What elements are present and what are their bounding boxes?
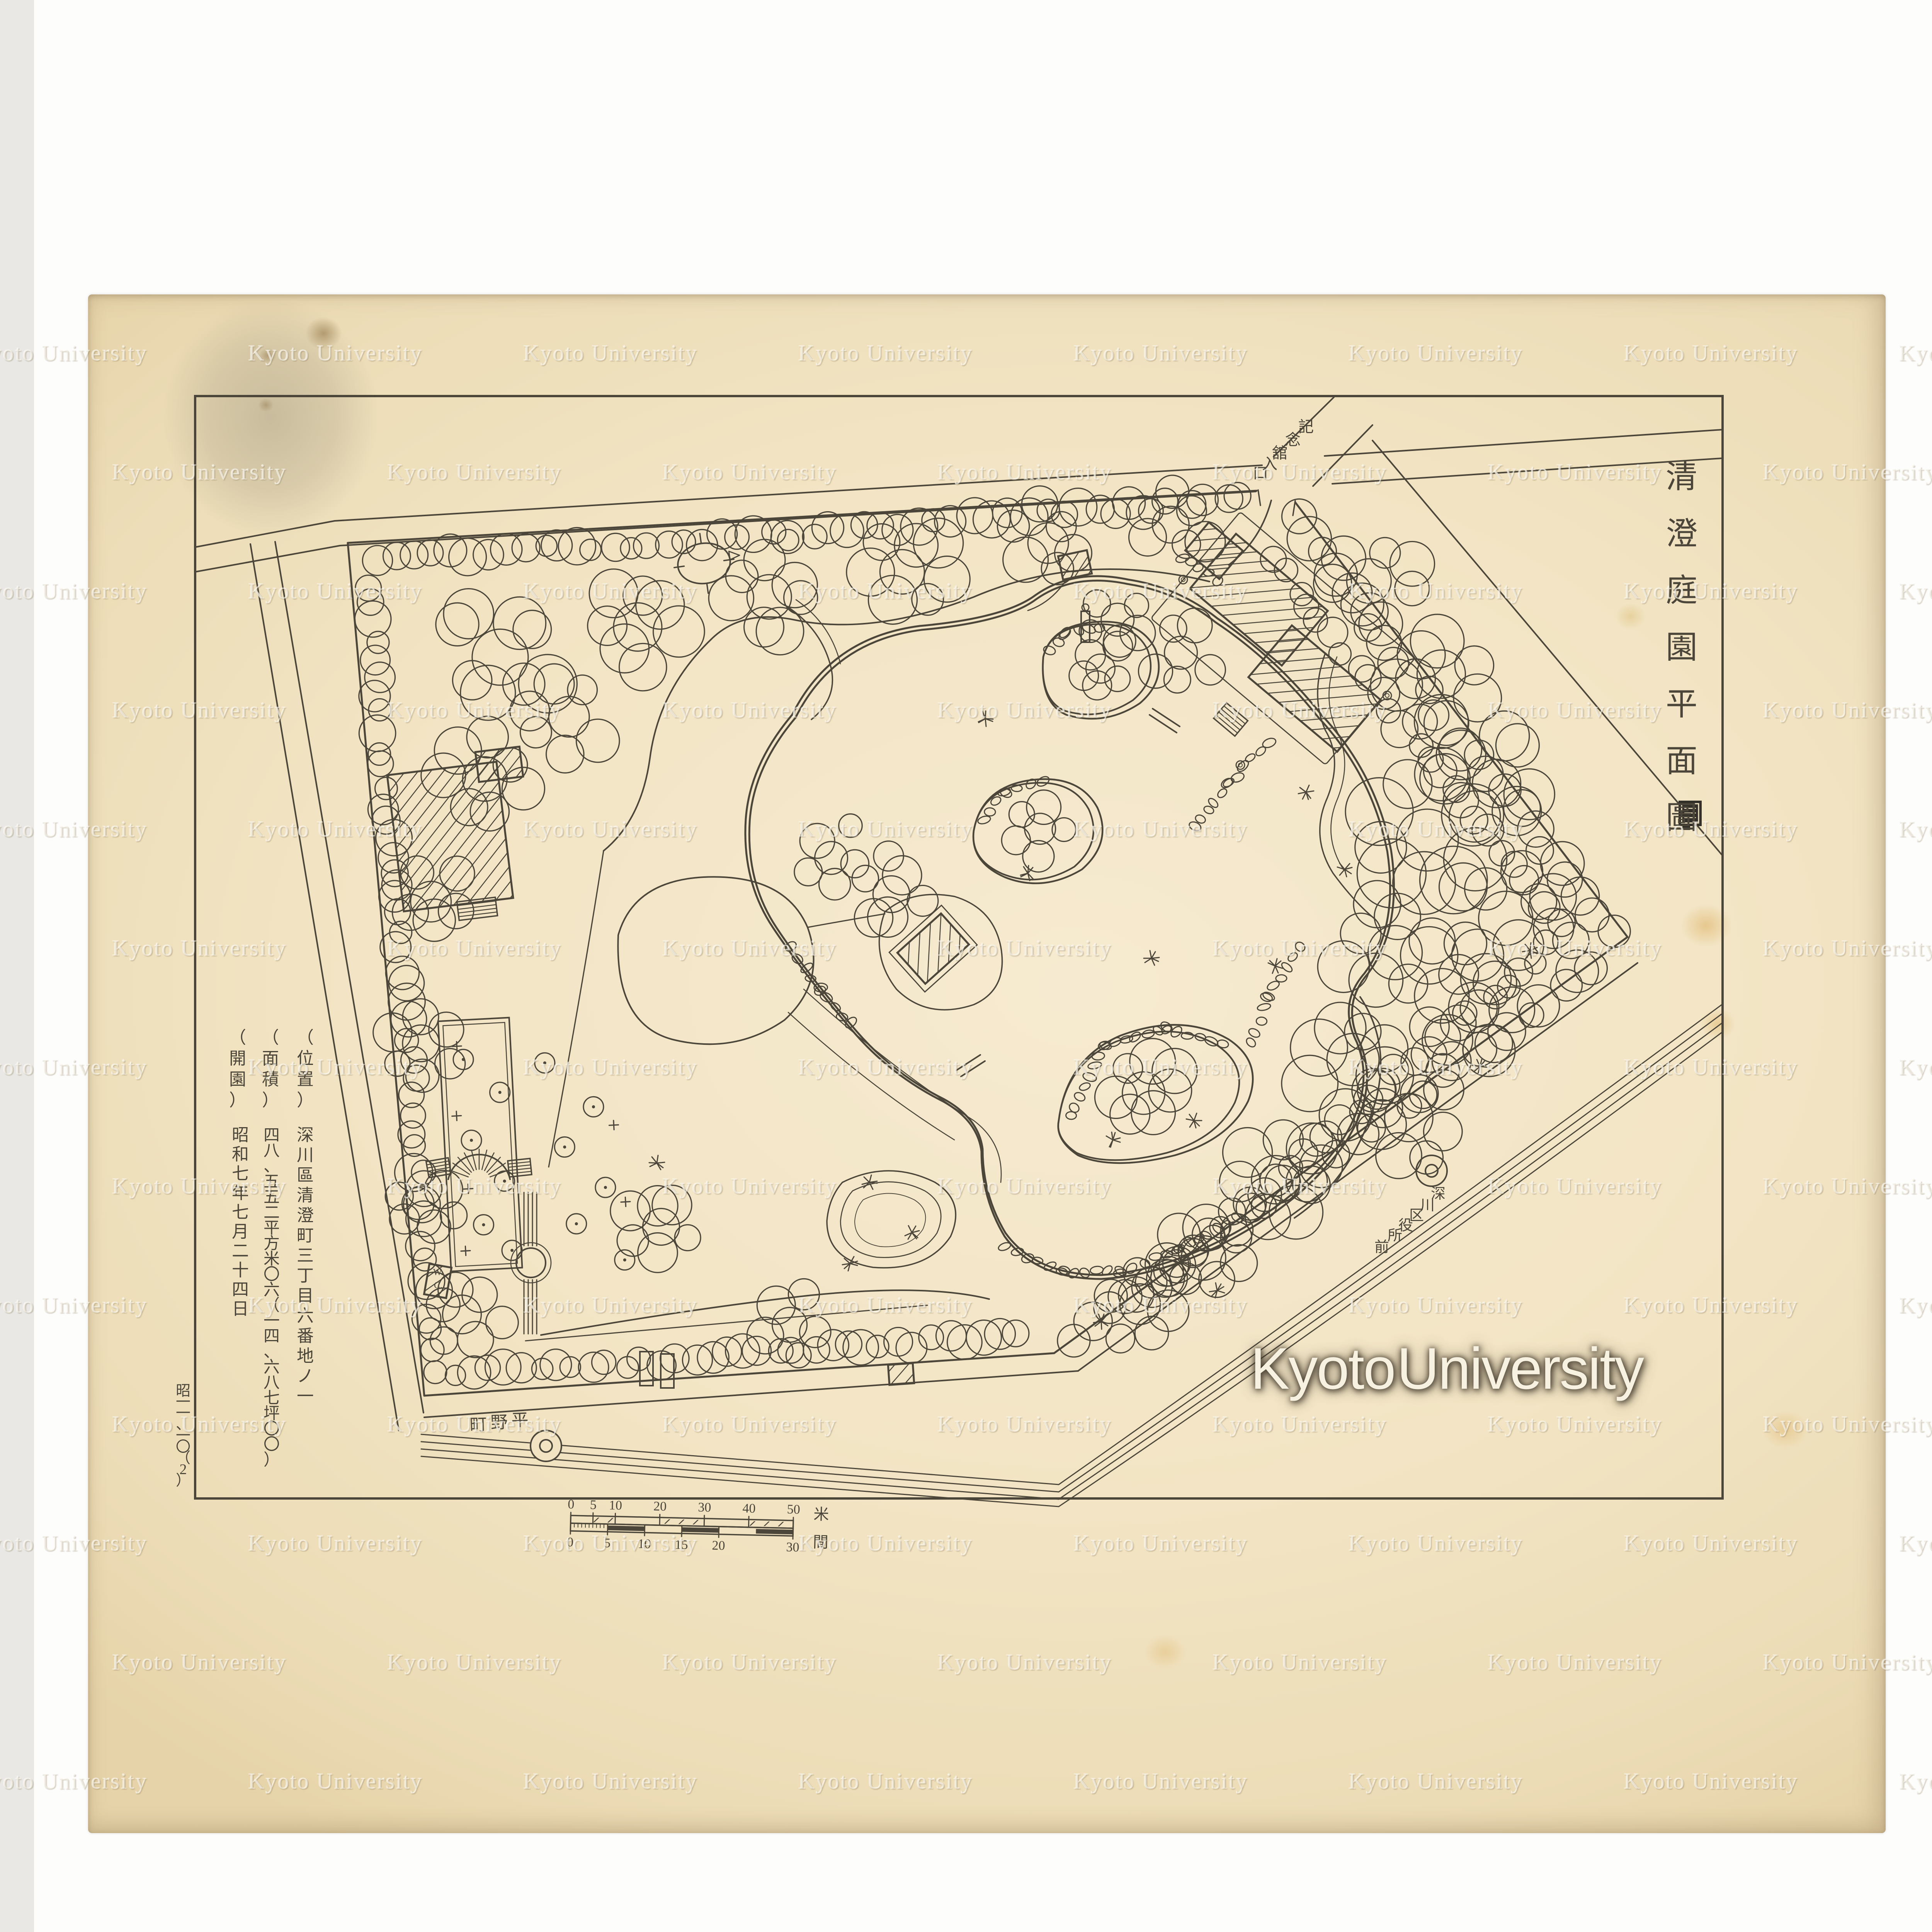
watermark-tile: Kyoto University: [248, 340, 423, 366]
watermark-tile: Kyoto University: [248, 1054, 423, 1080]
svg-text:（: （: [262, 1028, 279, 1047]
watermark-tile: Kyoto University: [1073, 340, 1248, 366]
watermark-tile: Kyoto University: [798, 816, 973, 842]
watermark-tile: Kyoto University: [387, 935, 562, 961]
watermark-tile: Kyoto University: [1763, 1649, 1932, 1675]
svg-text:30: 30: [698, 1500, 711, 1515]
watermark-tile: Kyoto University: [1073, 1292, 1248, 1318]
mound-contours: [827, 1171, 956, 1268]
watermark-tile: Kyoto University: [798, 1054, 973, 1080]
watermark-tile: Kyoto University: [1763, 697, 1932, 723]
watermark-tile: Kyoto University: [387, 459, 562, 485]
svg-text:地: 地: [297, 1347, 314, 1366]
svg-text:澄: 澄: [297, 1206, 314, 1225]
watermark-tile: Kyoto University: [798, 1768, 973, 1794]
svg-text:5: 5: [590, 1498, 597, 1512]
watermark-tile: Kyoto University: [1073, 578, 1248, 604]
stepping-stones: [784, 553, 1307, 1280]
watermark-tile: Kyoto University: [248, 1768, 423, 1794]
svg-text:四: 四: [232, 1280, 249, 1299]
wc-building: W.C.: [424, 1264, 451, 1298]
shrub-stars: [649, 711, 1537, 1329]
watermark-tile: Kyoto University: [1349, 1054, 1523, 1080]
svg-text:20: 20: [653, 1499, 667, 1514]
svg-text:0: 0: [568, 1497, 575, 1512]
svg-text:月: 月: [232, 1222, 249, 1241]
scanned-page: W.C.清澄庭園平面圖（位置）深川區清澄町三丁目六番地ノ一（面積）四八、五五二平…: [0, 0, 1932, 1932]
watermark-tile: Kyoto University: [1624, 340, 1798, 366]
watermark-tile: Kyoto University: [1213, 1411, 1387, 1437]
watermark-tile: Kyoto University: [1763, 1173, 1932, 1199]
svg-text:50: 50: [787, 1502, 800, 1517]
watermark-tile: Kyoto University: [1763, 1411, 1932, 1437]
svg-text:區: 區: [297, 1166, 314, 1185]
svg-text:ノ: ノ: [297, 1367, 314, 1386]
svg-text:深: 深: [297, 1126, 314, 1145]
watermark-tile: Kyoto University: [1073, 1530, 1248, 1556]
svg-text:20: 20: [712, 1538, 725, 1553]
watermark-tile: Kyoto University: [662, 459, 837, 485]
watermark-tile: Kyoto University: [1349, 816, 1523, 842]
watermark-tile: Kyoto University: [0, 340, 148, 366]
watermark-tile: Kyoto University: [1073, 1054, 1248, 1080]
svg-text:40: 40: [742, 1501, 756, 1516]
svg-text:十: 十: [232, 1261, 249, 1280]
watermark-tile: Kyoto University: [1624, 1054, 1798, 1080]
watermark-tile: Kyoto University: [0, 1292, 148, 1318]
watermark-tile: Kyoto University: [1213, 935, 1387, 961]
watermark-tile: Kyoto University: [1073, 1768, 1248, 1794]
watermark-tile: Kyoto University: [1349, 1530, 1523, 1556]
watermark-tile: Kyoto University: [1624, 1768, 1798, 1794]
watermark-tile: Kyoto University: [1488, 1649, 1662, 1675]
shed-south: [888, 1363, 914, 1385]
svg-text:清: 清: [1666, 459, 1697, 495]
watermark-tile: Kyoto University: [387, 697, 562, 723]
watermark-tile: Kyoto University: [1899, 1054, 1932, 1080]
watermark-tile: Kyoto University: [798, 1530, 973, 1556]
watermark-tile: Kyoto University: [1488, 1173, 1662, 1199]
svg-text:念: 念: [1285, 431, 1301, 449]
watermark-tile: Kyoto University: [0, 578, 148, 604]
svg-text:園: 園: [1666, 630, 1697, 665]
watermark-tile: Kyoto University: [798, 578, 973, 604]
watermark-tile: Kyoto University: [1488, 697, 1662, 723]
watermark-tile: Kyoto University: [523, 1530, 698, 1556]
watermark-tile: Kyoto University: [0, 1054, 148, 1080]
svg-text:昭: 昭: [232, 1126, 249, 1145]
watermark-tile: Kyoto University: [387, 1411, 562, 1437]
watermark-tile: Kyoto University: [662, 935, 837, 961]
watermark-tile: Kyoto University: [112, 459, 287, 485]
watermark-tile: Kyoto University: [1763, 459, 1932, 485]
watermark-tile: Kyoto University: [1213, 1649, 1387, 1675]
svg-text:日: 日: [232, 1299, 249, 1318]
watermark-tile: Kyoto University: [937, 935, 1112, 961]
svg-text:記: 記: [1298, 418, 1314, 435]
watermark-tile: Kyoto University: [1349, 1292, 1523, 1318]
svg-text:開: 開: [229, 1049, 246, 1068]
watermark-tile: Kyoto University: [112, 1173, 287, 1199]
svg-text:川: 川: [297, 1146, 314, 1165]
watermark-tile: Kyoto University: [248, 578, 423, 604]
svg-text:W.: W.: [433, 1267, 443, 1277]
watermark-tile: Kyoto University: [112, 935, 287, 961]
svg-text:（: （: [297, 1028, 314, 1047]
watermark-tile: Kyoto University: [112, 1411, 287, 1437]
watermark-tile: Kyoto University: [248, 1530, 423, 1556]
watermark-tile: Kyoto University: [1213, 1173, 1387, 1199]
watermark-tile: Kyoto University: [1899, 816, 1932, 842]
watermark-tile: Kyoto University: [937, 1411, 1112, 1437]
svg-text:）: ）: [229, 1091, 246, 1110]
watermark-tile: Kyoto University: [1624, 1292, 1798, 1318]
watermark-tile: Kyoto University: [0, 1768, 148, 1794]
svg-text:）: ）: [297, 1091, 314, 1110]
svg-text:澄: 澄: [1666, 516, 1697, 551]
svg-text:二: 二: [232, 1242, 249, 1260]
watermark-tile: Kyoto University: [662, 697, 837, 723]
watermark-tile: Kyoto University: [0, 1530, 148, 1556]
watermark-tile: Kyoto University: [798, 1292, 973, 1318]
svg-text:C.: C.: [434, 1281, 442, 1291]
svg-text:丁: 丁: [297, 1266, 314, 1285]
svg-text:）: ）: [264, 1451, 280, 1469]
watermark-tile: Kyoto University: [1624, 1530, 1798, 1556]
watermark-tile: Kyoto University: [1899, 340, 1932, 366]
watermark-tile: Kyoto University: [937, 1649, 1112, 1675]
watermark-tile: Kyoto University: [798, 340, 973, 366]
svg-text:（: （: [229, 1028, 246, 1047]
watermark-tile: Kyoto University: [1899, 578, 1932, 604]
watermark-tile: Kyoto University: [937, 459, 1112, 485]
svg-text:番: 番: [297, 1327, 314, 1345]
svg-text:三: 三: [297, 1246, 314, 1265]
svg-text:町: 町: [297, 1226, 314, 1245]
watermark-tile: Kyoto University: [523, 816, 698, 842]
watermark-tile: Kyoto University: [0, 816, 148, 842]
watermark-tile: Kyoto University: [1213, 697, 1387, 723]
watermark-tile: Kyoto University: [1213, 459, 1387, 485]
big-watermark: Kyoto University: [1250, 1335, 1643, 1403]
watermark-tile: Kyoto University: [662, 1173, 837, 1199]
svg-text:一: 一: [297, 1387, 314, 1406]
watermark-tile: Kyoto University: [523, 1768, 698, 1794]
watermark-tile: Kyoto University: [1073, 816, 1248, 842]
watermark-tile: Kyoto University: [112, 697, 287, 723]
watermark-tile: Kyoto University: [523, 1292, 698, 1318]
watermark-tile: Kyoto University: [1349, 578, 1523, 604]
svg-text:）: ）: [176, 1473, 190, 1489]
svg-text:七: 七: [232, 1203, 249, 1222]
watermark-tile: Kyoto University: [1624, 578, 1798, 604]
watermark-tile: Kyoto University: [387, 1649, 562, 1675]
watermark-tile: Kyoto University: [523, 1054, 698, 1080]
watermark-tile: Kyoto University: [248, 816, 423, 842]
svg-text:所: 所: [1388, 1228, 1402, 1244]
watermark-tile: Kyoto University: [937, 1173, 1112, 1199]
svg-text:前: 前: [1374, 1239, 1389, 1255]
watermark-tile: Kyoto University: [1488, 935, 1662, 961]
watermark-tile: Kyoto University: [248, 1292, 423, 1318]
watermark-tile: Kyoto University: [1899, 1530, 1932, 1556]
svg-text:）: ）: [262, 1091, 279, 1110]
watermark-tile: Kyoto University: [662, 1649, 837, 1675]
garden-plan-map: W.C.清澄庭園平面圖（位置）深川區清澄町三丁目六番地ノ一（面積）四八、五五二平…: [0, 0, 1932, 1932]
svg-text:面: 面: [1666, 743, 1697, 779]
watermark-tile: Kyoto University: [523, 340, 698, 366]
svg-text:園: 園: [229, 1070, 246, 1089]
svg-text:米: 米: [813, 1505, 829, 1523]
watermark-tile: Kyoto University: [662, 1411, 837, 1437]
svg-text:10: 10: [609, 1498, 622, 1513]
watermark-tile: Kyoto University: [1349, 340, 1523, 366]
watermark-tile: Kyoto University: [1349, 1768, 1523, 1794]
svg-text:清: 清: [297, 1186, 314, 1205]
watermark-tile: Kyoto University: [1763, 935, 1932, 961]
svg-text:平: 平: [1666, 687, 1697, 722]
watermark-tile: Kyoto University: [937, 697, 1112, 723]
watermark-tile: Kyoto University: [112, 1649, 287, 1675]
svg-text:和: 和: [232, 1145, 249, 1164]
watermark-tile: Kyoto University: [1899, 1768, 1932, 1794]
watermark-tile: Kyoto University: [1488, 1411, 1662, 1437]
watermark-tile: Kyoto University: [1624, 816, 1798, 842]
watermark-tile: Kyoto University: [387, 1173, 562, 1199]
svg-text:30: 30: [786, 1540, 799, 1555]
watermark-tile: Kyoto University: [1899, 1292, 1932, 1318]
watermark-tile: Kyoto University: [523, 578, 698, 604]
watermark-tile: Kyoto University: [1488, 459, 1662, 485]
gate-pillars-south: [640, 1352, 674, 1388]
